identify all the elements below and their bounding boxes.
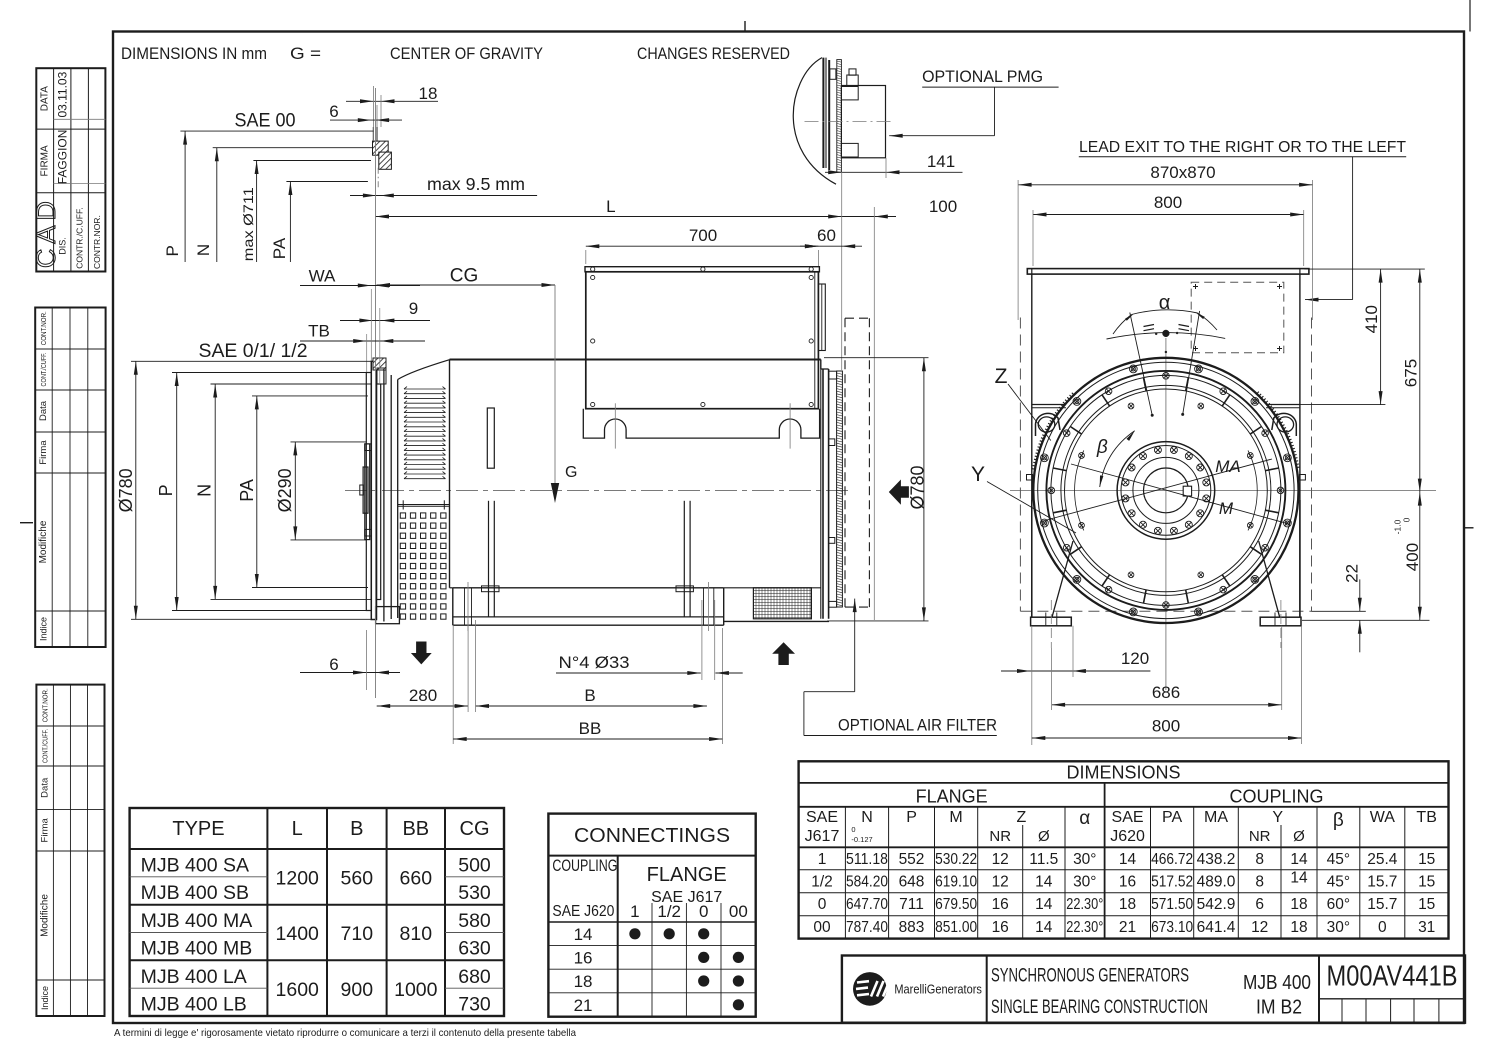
svg-text:TB: TB (1416, 809, 1436, 826)
svg-text:DIS.: DIS. (57, 237, 67, 255)
svg-text:280: 280 (409, 686, 437, 705)
svg-text:BB: BB (579, 719, 602, 738)
svg-text:MJB 400 LA: MJB 400 LA (141, 966, 247, 988)
svg-text:Indice: Indice (40, 986, 50, 1010)
svg-text:N: N (195, 484, 215, 497)
svg-text:max Ø711: max Ø711 (240, 187, 256, 261)
svg-text:PA: PA (237, 479, 257, 502)
svg-text:SAE: SAE (1112, 809, 1144, 826)
svg-text:30°: 30° (1073, 873, 1096, 890)
svg-text:1/2: 1/2 (657, 902, 681, 921)
svg-text:CONT./CUFF.: CONT./CUFF. (39, 353, 48, 387)
svg-text:P: P (906, 809, 917, 826)
svg-text:B: B (584, 686, 595, 705)
svg-text:FIRMA: FIRMA (39, 145, 50, 176)
svg-text:14: 14 (1035, 896, 1053, 913)
svg-text:15.7: 15.7 (1367, 896, 1397, 913)
svg-text:511.18: 511.18 (846, 851, 888, 868)
svg-text:CONNECTINGS: CONNECTINGS (574, 825, 730, 847)
svg-text:648: 648 (899, 873, 925, 890)
svg-text:0: 0 (851, 825, 855, 834)
svg-text:BB: BB (402, 818, 429, 840)
svg-text:641.4: 641.4 (1197, 919, 1236, 936)
svg-text:500: 500 (458, 855, 491, 877)
svg-text:MJB 400 SB: MJB 400 SB (141, 882, 249, 904)
svg-text:α: α (1159, 292, 1171, 314)
svg-text:787.40: 787.40 (846, 919, 888, 936)
svg-text:FLANGE: FLANGE (916, 786, 988, 806)
svg-text:580: 580 (458, 910, 491, 932)
svg-text:CENTER OF GRAVITY: CENTER OF GRAVITY (390, 45, 543, 63)
svg-text:J620: J620 (1110, 828, 1145, 845)
svg-text:WA: WA (1370, 809, 1396, 826)
svg-text:CONT.NOR.: CONT.NOR. (39, 311, 48, 345)
svg-text:SAE J620: SAE J620 (552, 903, 614, 920)
svg-text:14: 14 (1290, 851, 1308, 868)
svg-text:0: 0 (699, 902, 708, 921)
svg-text:DATA: DATA (39, 86, 50, 112)
svg-text:FLANGE: FLANGE (647, 864, 727, 886)
svg-text:DIMENSIONS IN mm: DIMENSIONS IN mm (121, 45, 267, 63)
svg-text:552: 552 (899, 851, 925, 868)
svg-text:1: 1 (818, 851, 827, 868)
svg-text:60°: 60° (1327, 896, 1350, 913)
svg-text:CONT.NOR.: CONT.NOR. (40, 688, 49, 722)
svg-text:1200: 1200 (276, 868, 320, 890)
svg-text:870x870: 870x870 (1150, 163, 1215, 182)
svg-text:542.9: 542.9 (1197, 896, 1236, 913)
svg-text:PA: PA (1162, 809, 1182, 826)
svg-text:CG: CG (450, 266, 479, 287)
svg-text:673.10: 673.10 (1151, 919, 1193, 936)
svg-text:630: 630 (458, 938, 491, 960)
svg-text:584.20: 584.20 (846, 873, 888, 890)
svg-text:-1.0: -1.0 (1393, 519, 1403, 534)
svg-text:18: 18 (1290, 919, 1307, 936)
svg-text:1400: 1400 (276, 923, 320, 945)
svg-text:1600: 1600 (276, 979, 320, 1001)
svg-text:8: 8 (1255, 851, 1264, 868)
svg-text:N: N (194, 244, 213, 256)
svg-text:M: M (949, 809, 962, 826)
svg-text:18: 18 (574, 972, 593, 991)
svg-text:β: β (1333, 810, 1344, 831)
svg-text:21: 21 (1119, 919, 1136, 936)
svg-text:β: β (1096, 437, 1108, 458)
svg-text:MarelliGenerators: MarelliGenerators (894, 982, 982, 997)
svg-text:1: 1 (630, 902, 639, 921)
svg-text:21: 21 (574, 996, 593, 1015)
svg-text:530: 530 (458, 882, 491, 904)
svg-text:OPTIONAL PMG: OPTIONAL PMG (922, 68, 1043, 86)
svg-text:18: 18 (1119, 896, 1136, 913)
svg-text:B: B (350, 818, 363, 840)
svg-text:675: 675 (1402, 359, 1421, 387)
svg-text:15: 15 (1418, 873, 1435, 890)
svg-text:SYNCHRONOUS GENERATORS: SYNCHRONOUS GENERATORS (991, 966, 1189, 987)
svg-text:MA: MA (1215, 457, 1241, 476)
svg-text:1/2: 1/2 (811, 873, 833, 890)
svg-text:SAE 0/1/ 1/2: SAE 0/1/ 1/2 (199, 341, 308, 362)
svg-text:11.5: 11.5 (1029, 851, 1058, 868)
svg-text:IM B2: IM B2 (1256, 997, 1302, 1019)
svg-text:Firma: Firma (38, 440, 49, 465)
svg-text:31: 31 (1418, 919, 1435, 936)
svg-text:MJB 400 MA: MJB 400 MA (141, 910, 253, 932)
svg-text:489.0: 489.0 (1197, 873, 1236, 890)
svg-text:P: P (163, 245, 182, 256)
svg-text:800: 800 (1154, 193, 1182, 212)
svg-text:max 9.5 mm: max 9.5 mm (427, 174, 525, 194)
svg-text:710: 710 (341, 923, 374, 945)
svg-text:14: 14 (574, 925, 593, 944)
svg-text:03.11.03: 03.11.03 (55, 71, 69, 117)
svg-text:MJB 400 MB: MJB 400 MB (141, 938, 253, 960)
svg-text:900: 900 (341, 979, 374, 1001)
svg-text:711: 711 (899, 896, 924, 913)
svg-text:MJB 400: MJB 400 (1243, 972, 1311, 994)
svg-text:CONTR.NOR.: CONTR.NOR. (92, 215, 102, 269)
svg-text:Z: Z (995, 365, 1008, 388)
svg-text:00: 00 (729, 902, 748, 921)
svg-text:12: 12 (992, 851, 1009, 868)
svg-text:TB: TB (308, 322, 330, 341)
svg-text:8: 8 (1255, 873, 1264, 890)
svg-text:810: 810 (400, 923, 433, 945)
svg-text:M: M (1219, 499, 1234, 518)
svg-text:660: 660 (400, 868, 433, 890)
svg-text:6: 6 (329, 102, 338, 121)
svg-text:-0.127: -0.127 (851, 835, 872, 844)
svg-text:22.30°: 22.30° (1066, 896, 1103, 913)
svg-text:TYPE: TYPE (172, 818, 224, 840)
svg-text:883: 883 (899, 919, 925, 936)
svg-text:517.52: 517.52 (1151, 873, 1193, 890)
svg-text:16: 16 (1119, 873, 1136, 890)
svg-text:680: 680 (458, 966, 491, 988)
svg-text:Ø780: Ø780 (116, 468, 136, 512)
svg-text:730: 730 (458, 993, 491, 1015)
svg-text:SINGLE BEARING CONSTRUCTION: SINGLE BEARING CONSTRUCTION (991, 997, 1208, 1018)
svg-text:MJB 400 SA: MJB 400 SA (141, 855, 249, 877)
svg-text:Firma: Firma (39, 817, 50, 842)
svg-text:686: 686 (1152, 683, 1180, 702)
svg-text:0: 0 (1378, 919, 1387, 936)
svg-text:22.30°: 22.30° (1066, 919, 1103, 936)
svg-text:0: 0 (818, 896, 827, 913)
svg-text:679.50: 679.50 (935, 896, 977, 913)
svg-text:14: 14 (1119, 851, 1137, 868)
svg-text:MJB 400 LB: MJB 400 LB (141, 993, 247, 1015)
svg-text:12: 12 (1251, 919, 1268, 936)
svg-text:1000: 1000 (394, 979, 438, 1001)
svg-text:6: 6 (1255, 896, 1264, 913)
svg-text:15: 15 (1418, 896, 1435, 913)
svg-text:0: 0 (1402, 517, 1412, 522)
svg-text:466.72: 466.72 (1151, 851, 1193, 868)
svg-text:619.10: 619.10 (935, 873, 977, 890)
svg-text:MA: MA (1204, 809, 1228, 826)
svg-text:SAE 00: SAE 00 (235, 111, 296, 132)
svg-text:800: 800 (1152, 717, 1180, 736)
svg-text:700: 700 (689, 226, 717, 245)
svg-text:COUPLING: COUPLING (1230, 786, 1324, 806)
svg-text:Indice: Indice (39, 617, 49, 641)
svg-text:Z: Z (1016, 809, 1026, 826)
svg-text:16: 16 (992, 919, 1009, 936)
svg-text:Y: Y (971, 463, 985, 486)
svg-text:15: 15 (1418, 851, 1435, 868)
svg-text:00: 00 (813, 919, 831, 936)
svg-text:15.7: 15.7 (1367, 873, 1397, 890)
svg-text:CAD: CAD (31, 196, 61, 268)
svg-text:Ø: Ø (1038, 828, 1050, 845)
svg-text:6: 6 (329, 655, 338, 674)
svg-text:Modifiche: Modifiche (38, 520, 49, 563)
svg-text:G =: G = (290, 45, 321, 63)
svg-text:45°: 45° (1327, 851, 1350, 868)
svg-text:571.50: 571.50 (1151, 896, 1193, 913)
svg-text:L: L (292, 818, 303, 840)
svg-text:N: N (861, 809, 873, 826)
svg-text:CG: CG (460, 818, 490, 840)
svg-text:Ø: Ø (1293, 828, 1305, 845)
svg-text:NR: NR (989, 828, 1011, 845)
svg-text:410: 410 (1362, 305, 1381, 333)
svg-text:WA: WA (309, 267, 336, 286)
svg-text:CONTR./C.UFF.: CONTR./C.UFF. (75, 207, 85, 268)
svg-text:851.00: 851.00 (935, 919, 977, 936)
svg-text:N°4 Ø33: N°4 Ø33 (559, 653, 630, 672)
svg-text:16: 16 (574, 948, 593, 967)
svg-text:Y: Y (1272, 809, 1283, 826)
svg-text:400: 400 (1403, 543, 1422, 571)
svg-text:647.70: 647.70 (846, 896, 888, 913)
svg-text:CONT./CUFF.: CONT./CUFF. (40, 729, 49, 763)
svg-text:30°: 30° (1327, 919, 1350, 936)
svg-text:14: 14 (1035, 919, 1053, 936)
svg-text:22: 22 (1343, 564, 1362, 583)
svg-text:18: 18 (419, 84, 438, 103)
svg-text:438.2: 438.2 (1197, 851, 1236, 868)
svg-text:A termini di legge e' rigorosa: A termini di legge e' rigorosamente viet… (114, 1027, 576, 1039)
svg-text:NR: NR (1249, 828, 1271, 845)
svg-text:SAE: SAE (806, 809, 838, 826)
svg-text:PA: PA (270, 237, 289, 259)
svg-text:141: 141 (927, 152, 955, 171)
svg-text:Ø780: Ø780 (908, 465, 928, 509)
svg-text:Data: Data (38, 400, 49, 421)
svg-text:30°: 30° (1073, 851, 1096, 868)
svg-text:Ø290: Ø290 (275, 468, 295, 512)
svg-text:25.4: 25.4 (1367, 851, 1398, 868)
svg-text:18: 18 (1290, 896, 1307, 913)
svg-text:530.22: 530.22 (935, 851, 977, 868)
svg-text:FAGGION: FAGGION (55, 130, 69, 185)
svg-text:J617: J617 (805, 828, 840, 845)
svg-text:100: 100 (929, 197, 957, 216)
svg-text:α: α (1079, 808, 1090, 829)
svg-text:DIMENSIONS: DIMENSIONS (1067, 763, 1181, 783)
svg-text:OPTIONAL AIR FILTER: OPTIONAL AIR FILTER (838, 717, 997, 735)
svg-text:12: 12 (992, 873, 1009, 890)
svg-text:G: G (565, 464, 577, 481)
svg-text:45°: 45° (1327, 873, 1350, 890)
svg-text:LEAD EXIT TO THE RIGHT OR: LEAD EXIT TO THE RIGHT OR TO THE LEFT (1079, 139, 1406, 156)
svg-text:120: 120 (1121, 649, 1149, 668)
svg-text:560: 560 (341, 868, 374, 890)
svg-text:COUPLING: COUPLING (552, 857, 617, 875)
svg-text:16: 16 (992, 896, 1009, 913)
svg-text:M00AV441B: M00AV441B (1327, 961, 1458, 993)
svg-text:9: 9 (409, 299, 418, 318)
svg-text:Data: Data (39, 777, 50, 798)
svg-text:14: 14 (1035, 873, 1053, 890)
svg-text:CHANGES RESERVED: CHANGES RESERVED (637, 45, 790, 63)
svg-text:P: P (156, 484, 176, 496)
svg-text:Modifiche: Modifiche (39, 894, 50, 937)
svg-text:60: 60 (817, 226, 836, 245)
svg-text:L: L (606, 197, 615, 216)
svg-text:14: 14 (1290, 869, 1308, 886)
